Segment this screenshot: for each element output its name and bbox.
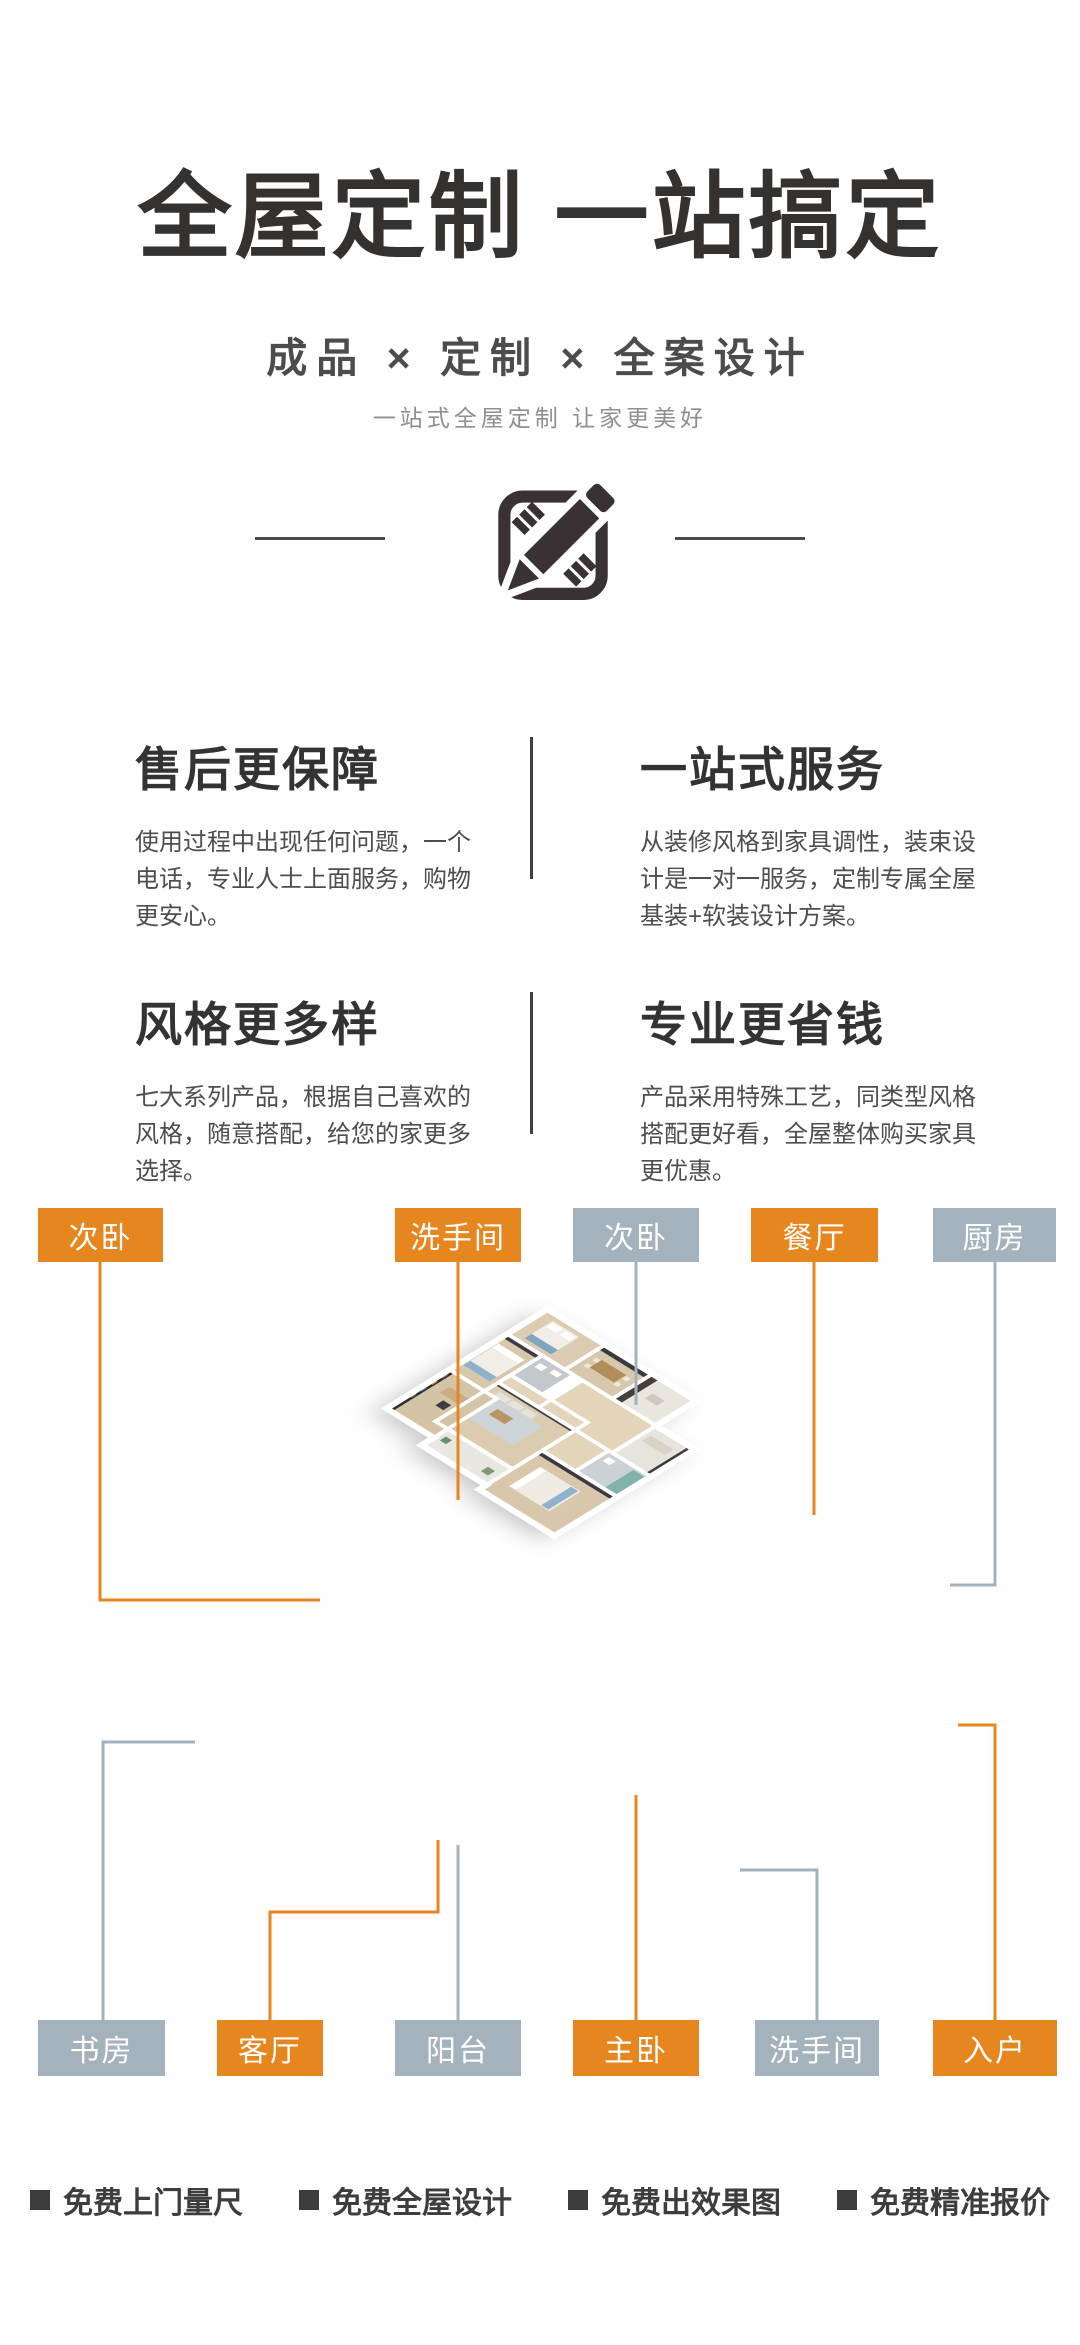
label-balcony: 阳台	[395, 2020, 521, 2076]
label-text: 次卧	[69, 1213, 133, 1257]
square-bullet-icon	[837, 2190, 857, 2210]
pencil-ruler-icon	[477, 466, 629, 626]
feature-divider-bottom	[530, 992, 533, 1134]
label-text: 阳台	[426, 2026, 490, 2070]
label-bedroom2-top: 次卧	[573, 1208, 699, 1262]
feature-body: 使用过程中出现任何问题，一个电话，专业人士上面服务，购物更安心。	[135, 824, 477, 935]
square-bullet-icon	[568, 2190, 588, 2210]
label-washroom-top: 洗手间	[395, 1208, 521, 1262]
feature-title: 专业更省钱	[640, 986, 992, 1055]
footer-item-text: 免费出效果图	[601, 2178, 781, 2222]
label-living: 客厅	[217, 2020, 323, 2076]
feature-body: 产品采用特殊工艺，同类型风格搭配更好看，全屋整体购买家具更优惠。	[640, 1079, 982, 1190]
hero-tagline: 一站式全屋定制 让家更美好	[0, 399, 1080, 433]
page-title: 全屋定制 一站搞定	[0, 168, 1080, 267]
footer-item-design: 免费全屋设计	[299, 2178, 512, 2222]
feature-title: 售后更保障	[135, 731, 487, 800]
footer-services: 免费上门量尺 免费全屋设计 免费出效果图 免费精准报价	[0, 2178, 1080, 2222]
hero-subtitle: 成品 × 定制 × 全案设计	[0, 324, 1080, 384]
feature-divider-top	[530, 737, 533, 879]
label-entry: 入户	[933, 2020, 1057, 2076]
feature-title: 一站式服务	[640, 731, 992, 800]
feature-savings: 专业更省钱 产品采用特殊工艺，同类型风格搭配更好看，全屋整体购买家具更优惠。	[640, 986, 992, 1190]
connector-kitchen-top	[950, 1262, 995, 1585]
footer-item-text: 免费精准报价	[870, 2178, 1050, 2222]
connector-bedroom2-top	[100, 1262, 320, 1600]
label-study: 书房	[38, 2020, 165, 2076]
feature-body: 从装修风格到家具调性，装束设计是一对一服务，定制专属全屋基装+软装设计方案。	[640, 824, 982, 935]
connector-lines	[0, 1200, 1080, 2100]
pencil-ruler-icon-svg	[477, 466, 629, 626]
footer-item-text: 免费上门量尺	[63, 2178, 243, 2222]
label-text: 入户	[963, 2026, 1027, 2070]
label-kitchen-top: 厨房	[933, 1208, 1056, 1262]
feature-styles: 风格更多样 七大系列产品，根据自己喜欢的风格，随意搭配，给您的家更多选择。	[135, 986, 487, 1190]
feature-aftersales: 售后更保障 使用过程中出现任何问题，一个电话，专业人士上面服务，购物更安心。	[135, 731, 487, 935]
label-text: 主卧	[604, 2026, 668, 2070]
connector-entry-bottom	[958, 1725, 995, 2020]
label-washroom-bottom: 洗手间	[755, 2020, 879, 2076]
label-bedroom-top: 次卧	[38, 1208, 163, 1262]
divider-line-left	[255, 537, 385, 540]
label-text: 餐厅	[783, 1213, 847, 1257]
connector-study-bottom	[103, 1742, 195, 2020]
square-bullet-icon	[299, 2190, 319, 2210]
footer-item-measure: 免费上门量尺	[30, 2178, 243, 2222]
label-text: 书房	[70, 2026, 134, 2070]
label-master: 主卧	[573, 2020, 699, 2076]
feature-body: 七大系列产品，根据自己喜欢的风格，随意搭配，给您的家更多选择。	[135, 1079, 477, 1190]
promo-page: 全屋定制 一站搞定 成品 × 定制 × 全案设计 一站式全屋定制 让家更美好	[0, 0, 1080, 2345]
connector-washroom-bottom	[740, 1870, 817, 2020]
divider-line-right	[675, 537, 805, 540]
square-bullet-icon	[30, 2190, 50, 2210]
label-text: 次卧	[604, 1213, 668, 1257]
feature-one-stop: 一站式服务 从装修风格到家具调性，装束设计是一对一服务，定制专属全屋基装+软装设…	[640, 731, 992, 935]
footer-item-text: 免费全屋设计	[332, 2178, 512, 2222]
footer-item-quote: 免费精准报价	[837, 2178, 1050, 2222]
feature-title: 风格更多样	[135, 986, 487, 1055]
label-text: 厨房	[963, 1213, 1027, 1257]
label-text: 洗手间	[769, 2026, 865, 2070]
connector-living-bottom	[270, 1840, 438, 2020]
label-text: 洗手间	[410, 1213, 506, 1257]
label-dining-top: 餐厅	[751, 1208, 878, 1262]
label-text: 客厅	[238, 2026, 302, 2070]
footer-item-rendering: 免费出效果图	[568, 2178, 781, 2222]
